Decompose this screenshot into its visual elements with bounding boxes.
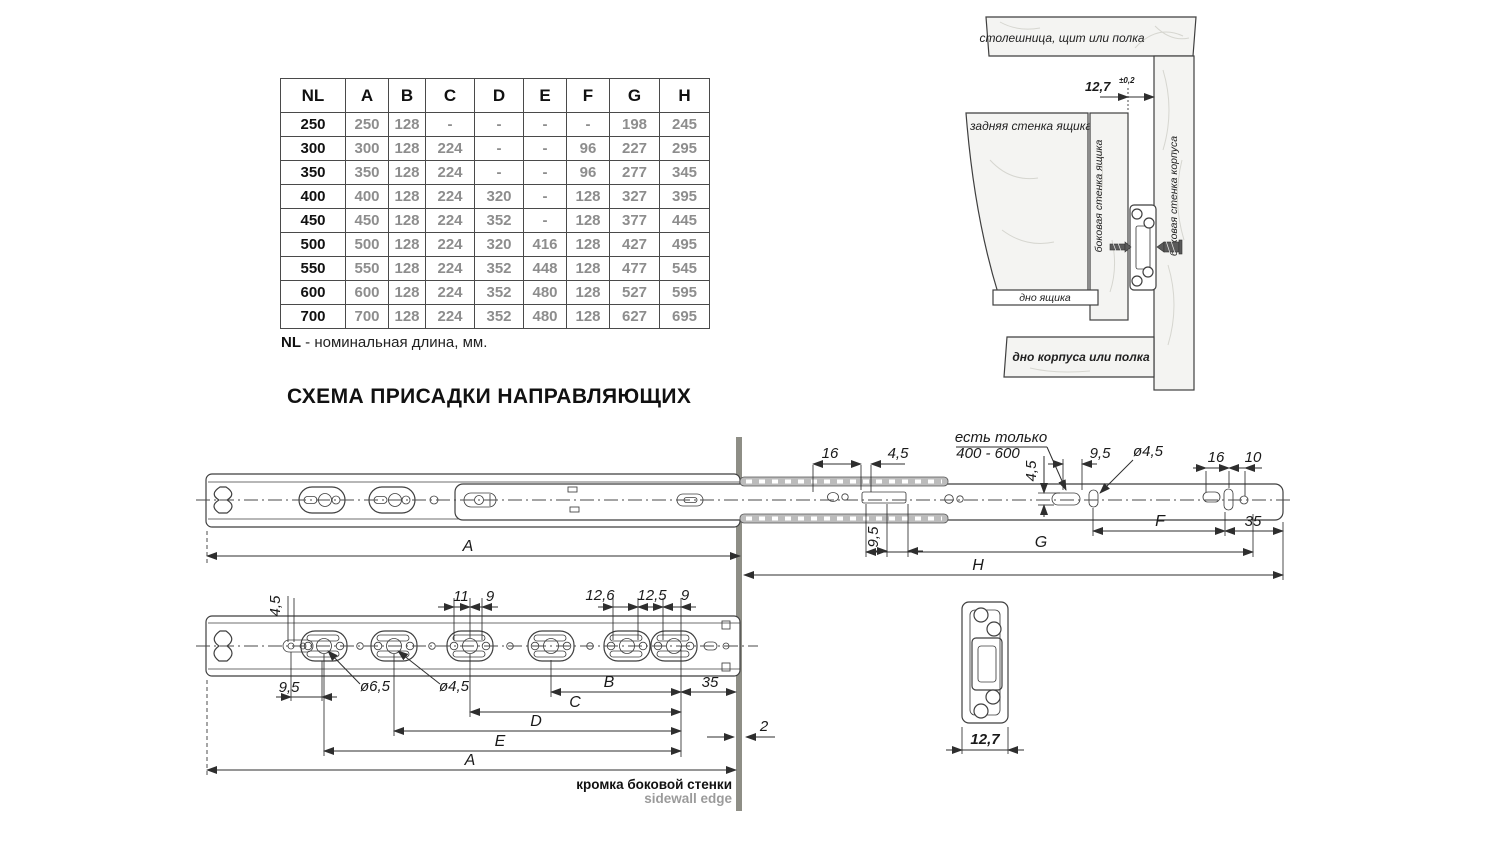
dim-label-10: 10 (1245, 449, 1262, 466)
table-head: NLABCDEFGH (281, 79, 710, 113)
dim-label-9-b: 9 (681, 587, 690, 604)
table-cell: - (524, 137, 567, 161)
table-header-cell: G (610, 79, 660, 113)
table-cell: 480 (524, 305, 567, 329)
table-row: 500500128224320416128427495 (281, 233, 710, 257)
table-cell: 128 (567, 233, 610, 257)
dim-label-f: F (1155, 513, 1166, 530)
table-cell: 198 (610, 113, 660, 137)
sidewall-edge-label-ru: кромка боковой стенки (576, 777, 732, 792)
dim-label-35-bottom: 35 (702, 674, 719, 691)
table-cell: 96 (567, 137, 610, 161)
table-cell: 448 (524, 257, 567, 281)
table-cell: 128 (567, 185, 610, 209)
table-cell: 227 (610, 137, 660, 161)
dimensions-table: NLABCDEFGH 250250128----1982453003001282… (280, 78, 710, 329)
dim-label-4-5-rot-bottom: 4,5 (267, 595, 284, 617)
table-header-cell: B (389, 79, 426, 113)
table-cell: 128 (389, 305, 426, 329)
table-cell: 480 (524, 281, 567, 305)
table-row-header: 700 (281, 305, 346, 329)
dim-label-4-5-rot: 4,5 (1023, 460, 1040, 482)
drawer-back-panel (966, 113, 1088, 293)
table-cell: 224 (426, 305, 475, 329)
table-cell: 224 (426, 209, 475, 233)
table-cell: 377 (610, 209, 660, 233)
table-row-header: 550 (281, 257, 346, 281)
top-view-drawing (196, 474, 1293, 527)
table-header-cell: A (346, 79, 389, 113)
dim-label-dia-4-5-top: ø4,5 (1133, 443, 1164, 460)
table-row: 550550128224352448128477545 (281, 257, 710, 281)
table-cell: - (475, 161, 524, 185)
table-row: 250250128----198245 (281, 113, 710, 137)
cabinet-side-label: боковая стенка корпуса (1168, 136, 1180, 256)
table-cell: 224 (426, 257, 475, 281)
drilling-scheme: A 16 4,5 9,5 есть только 400 - 600 4,5 9… (190, 420, 1310, 830)
table-cell: 395 (660, 185, 710, 209)
table-cell: 700 (346, 305, 389, 329)
dim-label-c: C (569, 694, 581, 711)
table-row: 400400128224320-128327395 (281, 185, 710, 209)
table-cell: 352 (475, 257, 524, 281)
table-cell: 300 (346, 137, 389, 161)
gap-tolerance: ±0,2 (1119, 76, 1135, 85)
dim-label-12-5: 12,5 (637, 587, 667, 604)
table-row: 450450128224352-128377445 (281, 209, 710, 233)
dim-label-12-6: 12,6 (585, 587, 615, 604)
table-cell: 224 (426, 281, 475, 305)
table-cell: 128 (389, 161, 426, 185)
dim-label-9-a: 9 (486, 588, 495, 605)
table-cell: 627 (610, 305, 660, 329)
table-cell: 527 (610, 281, 660, 305)
table-header-row: NLABCDEFGH (281, 79, 710, 113)
table-row: 350350128224--96277345 (281, 161, 710, 185)
drawer-bottom-label: дно ящика (1019, 292, 1071, 304)
dim-label-16-left: 16 (822, 445, 839, 462)
table-cell: 277 (610, 161, 660, 185)
table-cell: 352 (475, 209, 524, 233)
table-cell: 128 (567, 209, 610, 233)
table-header-cell: H (660, 79, 710, 113)
table-footnote: NL - номинальная длина, мм. (281, 334, 487, 351)
table-row: 700700128224352480128627695 (281, 305, 710, 329)
table-cell: 350 (346, 161, 389, 185)
table-cell: 224 (426, 185, 475, 209)
table-cell: 327 (610, 185, 660, 209)
dim-label-4-5-left: 4,5 (888, 445, 910, 462)
table-cell: 128 (389, 137, 426, 161)
dim-label-g: G (1035, 534, 1047, 551)
table-header-cell: E (524, 79, 567, 113)
table-header-cell: F (567, 79, 610, 113)
dim-label-d: D (530, 713, 542, 730)
dim-label-h: H (972, 557, 984, 574)
table-cell: 295 (660, 137, 710, 161)
table-cell: 595 (660, 281, 710, 305)
table-body: 250250128----198245300300128224--9622729… (281, 113, 710, 329)
dim-label-9-5-right: 9,5 (1090, 445, 1112, 462)
table-cell: 416 (524, 233, 567, 257)
table-cell: 550 (346, 257, 389, 281)
dim-label-a-top: A (462, 538, 474, 555)
table-cell: 345 (660, 161, 710, 185)
table-row-header: 500 (281, 233, 346, 257)
table-row: 600600128224352480128527595 (281, 281, 710, 305)
table-cell: 128 (567, 281, 610, 305)
table-cell: 450 (346, 209, 389, 233)
bottom-view-drawing (196, 616, 758, 676)
note-available-only-line2: 400 - 600 (956, 445, 1020, 462)
table-cell: 224 (426, 161, 475, 185)
section-width-label: 12,7 (970, 731, 1000, 748)
table-cell: - (524, 209, 567, 233)
table-cell: - (426, 113, 475, 137)
drawer-back-label: задняя стенка ящика (969, 119, 1092, 133)
table-cell: 427 (610, 233, 660, 257)
table-cell: 128 (389, 209, 426, 233)
table-cell: 400 (346, 185, 389, 209)
table-cell: 224 (426, 137, 475, 161)
table-cell: 320 (475, 233, 524, 257)
table-row-header: 350 (281, 161, 346, 185)
table-cell: 128 (389, 257, 426, 281)
table-cell: 695 (660, 305, 710, 329)
dim-label-35-top: 35 (1245, 513, 1262, 530)
table-cell: 495 (660, 233, 710, 257)
table-cell: 224 (426, 233, 475, 257)
table-cell: - (475, 113, 524, 137)
table-cell: 352 (475, 305, 524, 329)
table-cell: 320 (475, 185, 524, 209)
dim-label-b: B (604, 674, 615, 691)
table-row-header: 300 (281, 137, 346, 161)
table-cell: 128 (389, 281, 426, 305)
table-cell: 128 (389, 233, 426, 257)
table-cell: - (524, 113, 567, 137)
table-cell: 128 (389, 185, 426, 209)
dim-label-9-5-rot-left: 9,5 (865, 526, 882, 548)
installation-inset: столешница, щит или полка задняя стенка … (950, 10, 1280, 410)
table-cell: - (524, 161, 567, 185)
table-cell: - (524, 185, 567, 209)
dim-label-2: 2 (759, 718, 769, 735)
table-cell: - (475, 137, 524, 161)
section-heading: СХЕМА ПРИСАДКИ НАПРАВЛЯЮЩИХ (287, 385, 691, 409)
drawer-side-label: боковая стенка ящика (1093, 140, 1105, 253)
technical-sheet: NLABCDEFGH 250250128----1982453003001282… (0, 0, 1500, 844)
note-available-only-line1: есть только (955, 429, 1047, 446)
table-cell: 545 (660, 257, 710, 281)
cabinet-bottom-label: дно корпуса или полка (1012, 350, 1150, 364)
table-cell: 477 (610, 257, 660, 281)
table-header-cell: D (475, 79, 524, 113)
table-row: 300300128224--96227295 (281, 137, 710, 161)
table-cell: 245 (660, 113, 710, 137)
countertop-label: столешница, щит или полка (979, 31, 1144, 45)
table-cell: 352 (475, 281, 524, 305)
dim-label-9-5-bottom: 9,5 (279, 679, 301, 696)
table-row-header: 250 (281, 113, 346, 137)
dim-label-16-right: 16 (1208, 449, 1225, 466)
table-cell: 128 (567, 257, 610, 281)
table-cell: 96 (567, 161, 610, 185)
footnote-term: NL (281, 334, 301, 351)
table-cell: 600 (346, 281, 389, 305)
table-row-header: 400 (281, 185, 346, 209)
dim-label-e: E (495, 733, 506, 750)
table-cell: 500 (346, 233, 389, 257)
gap-value: 12,7 (1085, 79, 1111, 94)
dim-label-dia-4-5-bottom: ø4,5 (439, 678, 470, 695)
footnote-text: - номинальная длина, мм. (301, 334, 487, 351)
table-header-cell: NL (281, 79, 346, 113)
table-cell: 128 (389, 113, 426, 137)
table-cell: 445 (660, 209, 710, 233)
table-row-header: 450 (281, 209, 346, 233)
dim-label-a-bottom: A (464, 752, 476, 769)
dim-label-11: 11 (453, 588, 469, 605)
sidewall-edge-label-en: sidewall edge (644, 791, 732, 806)
dim-label-dia-6-5: ø6,5 (360, 678, 391, 695)
table-row-header: 600 (281, 281, 346, 305)
table-cell: 128 (567, 305, 610, 329)
table-header-cell: C (426, 79, 475, 113)
table-cell: - (567, 113, 610, 137)
table-cell: 250 (346, 113, 389, 137)
